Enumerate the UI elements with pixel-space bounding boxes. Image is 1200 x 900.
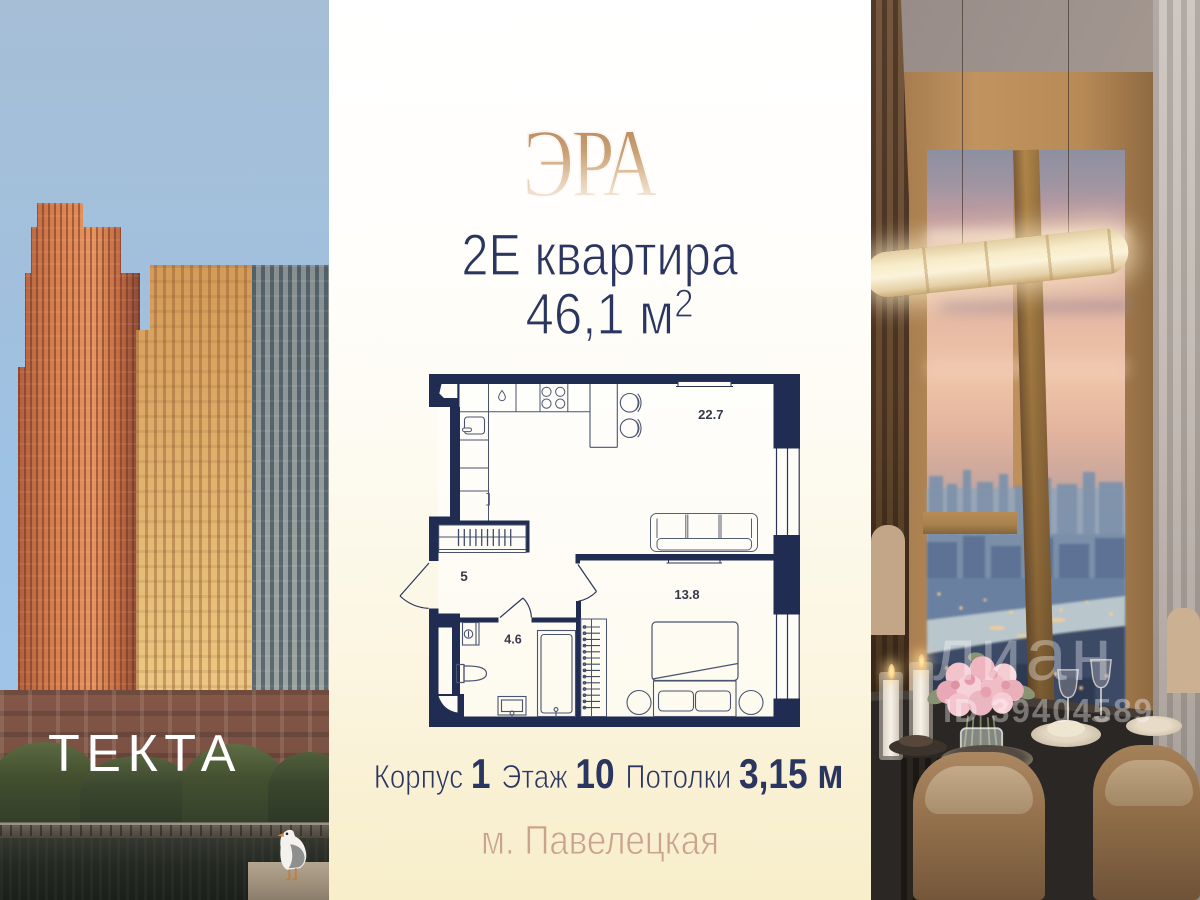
- svg-text:13.8: 13.8: [674, 587, 699, 602]
- svg-text:4.6: 4.6: [504, 633, 521, 647]
- svg-text:22.7: 22.7: [698, 407, 723, 422]
- svg-text:5: 5: [460, 569, 468, 584]
